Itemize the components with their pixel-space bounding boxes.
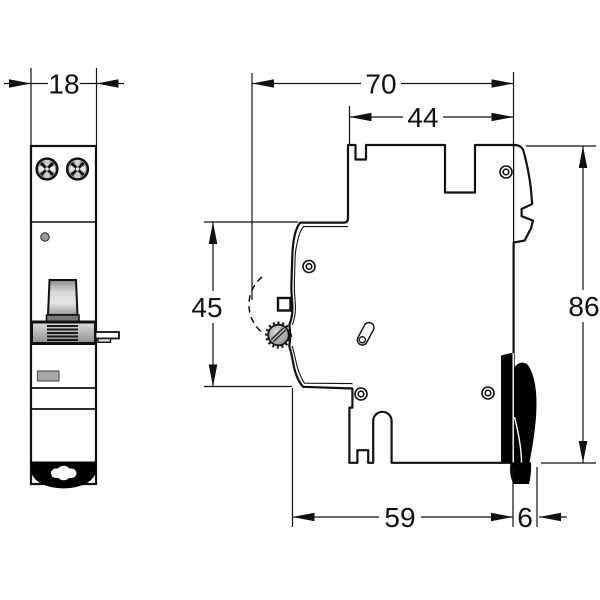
arrow <box>492 79 514 88</box>
dim-label-handle-zone-height: 45 <box>191 292 222 323</box>
dimension-front-width: 18 <box>4 68 124 145</box>
dimension-drawing: 18 70 44 45 <box>0 0 600 600</box>
arrow <box>579 146 588 168</box>
arrow <box>539 513 561 522</box>
arrow <box>579 441 588 463</box>
rivet <box>303 261 315 273</box>
arrow <box>209 365 218 387</box>
pivot-square <box>278 298 291 311</box>
dim-label-overall-height: 86 <box>568 291 599 322</box>
arrow <box>9 79 31 88</box>
rivet <box>500 166 512 178</box>
arrow <box>209 222 218 244</box>
rivet <box>355 388 367 400</box>
rivet <box>482 387 494 399</box>
test-tab-lower <box>98 339 111 343</box>
dim-label-upper-body-depth: 44 <box>407 102 438 133</box>
dimension-overall-height: 86 <box>526 146 600 463</box>
mounting-slot-hole <box>56 466 71 481</box>
arrow <box>492 113 514 122</box>
label-window <box>38 371 60 381</box>
dim-label-overall-depth: 70 <box>365 69 396 100</box>
arrow <box>293 513 315 522</box>
arrow <box>97 79 119 88</box>
adjustment-knob <box>267 323 291 347</box>
arrow <box>350 113 372 122</box>
status-led <box>41 233 49 241</box>
dim-label-lower-body-depth: 59 <box>384 502 415 533</box>
terminal-screw <box>37 159 58 180</box>
side-body-outline <box>289 145 533 463</box>
swing-arc <box>249 277 264 334</box>
din-clip <box>501 353 537 485</box>
front-view <box>31 146 119 488</box>
toggle-lever <box>48 280 78 315</box>
drawing-svg: 18 70 44 45 <box>0 0 600 600</box>
terminal-screw <box>67 159 88 180</box>
arrow <box>252 79 274 88</box>
dim-label-din-clip-depth: 6 <box>517 502 533 533</box>
arrow <box>491 513 513 522</box>
dim-label-front-width: 18 <box>48 69 79 100</box>
dimension-upper-body-depth: 44 <box>350 102 514 146</box>
test-tab <box>96 332 120 339</box>
